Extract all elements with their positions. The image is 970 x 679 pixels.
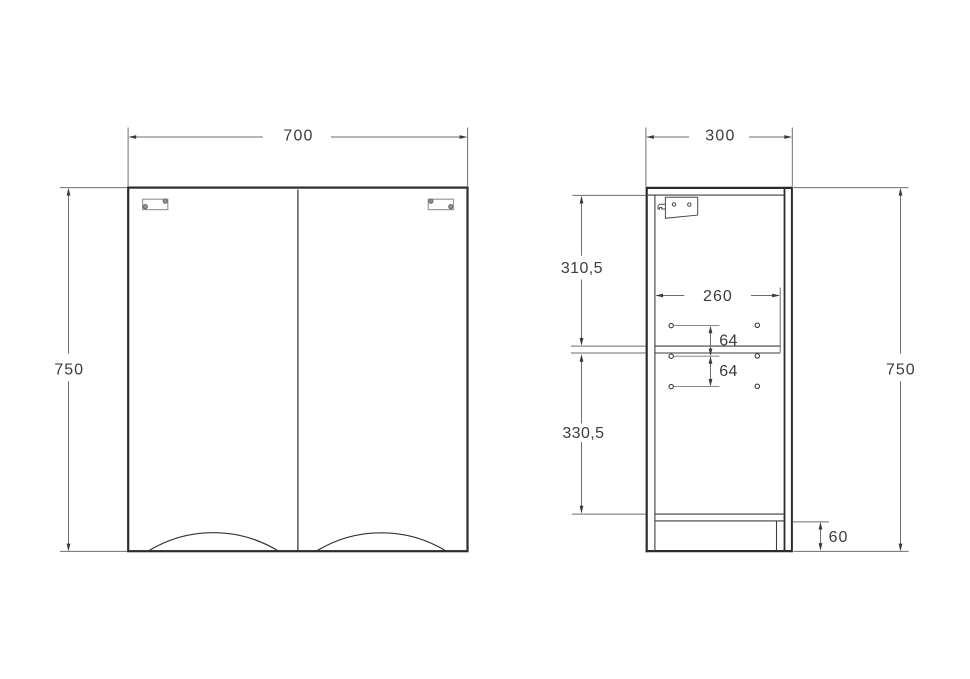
svg-text:300: 300 — [705, 127, 735, 144]
svg-text:60: 60 — [829, 529, 849, 546]
svg-text:260: 260 — [703, 288, 733, 305]
svg-text:750: 750 — [54, 362, 84, 379]
svg-text:64: 64 — [719, 363, 738, 380]
svg-text:750: 750 — [886, 362, 916, 379]
svg-text:64: 64 — [719, 333, 738, 350]
svg-text:700: 700 — [283, 127, 313, 144]
svg-text:310,5: 310,5 — [561, 260, 603, 277]
svg-text:330,5: 330,5 — [562, 425, 604, 442]
